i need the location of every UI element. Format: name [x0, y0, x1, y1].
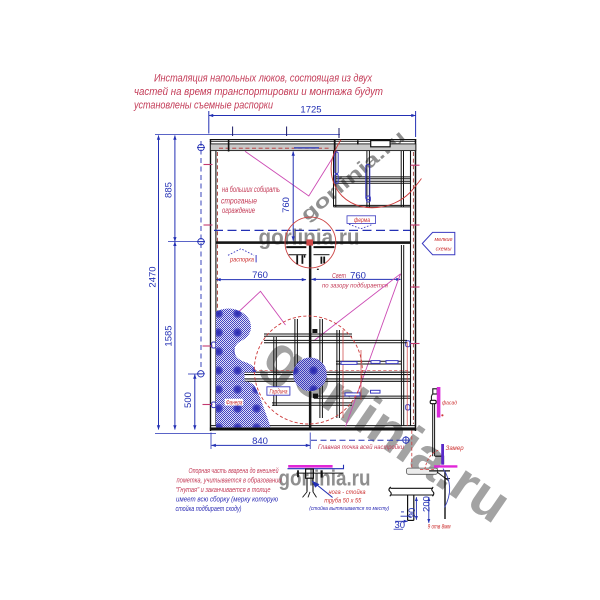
svg-text:частей на время транспортиров: частей на время транспортировки и монтаж… — [134, 86, 383, 98]
svg-text:885: 885 — [164, 182, 175, 198]
svg-text:имеет всю сборку (мерку котору: имеет всю сборку (мерку которую — [176, 495, 278, 504]
svg-text:1585: 1585 — [164, 325, 175, 346]
svg-text:мелкие: мелкие — [434, 237, 452, 243]
svg-text:"Гнутая" и заканчивается в тол: "Гнутая" и заканчивается в толще — [176, 485, 271, 494]
svg-text:500: 500 — [183, 392, 194, 408]
svg-text:стойка подбирает сходу): стойка подбирает сходу) — [176, 504, 242, 513]
svg-text:840: 840 — [252, 436, 268, 447]
svg-text:1725: 1725 — [300, 105, 321, 116]
svg-text:Опорная часть вварена до внешн: Опорная часть вварена до внешней — [189, 466, 280, 475]
svg-text:установлены съемные распорки: установлены съемные распорки — [133, 100, 273, 112]
svg-text:по зазору подбирается: по зазору подбирается — [322, 283, 389, 289]
svg-text:Замер: Замер — [446, 445, 465, 452]
svg-text:Свет: Свет — [332, 271, 346, 280]
svg-text:распорка: распорка — [229, 257, 254, 264]
svg-text:схемы: схемы — [436, 247, 452, 253]
svg-text:760: 760 — [252, 270, 268, 281]
svg-text:пометка, учитывается в образо: пометка, учитывается в образовании — [177, 476, 283, 485]
svg-text:нога - стойка: нога - стойка — [329, 488, 366, 496]
svg-text:труба 50 х 55: труба 50 х 55 — [324, 497, 361, 505]
svg-text:ферма: ферма — [354, 217, 370, 224]
svg-text:Инсталяция напольных люков, со: Инсталяция напольных люков, состоящая из… — [154, 73, 372, 85]
svg-text:2470: 2470 — [148, 266, 159, 287]
svg-text:строганые: строганые — [221, 197, 257, 206]
svg-text:ограждение: ограждение — [222, 206, 255, 215]
svg-text:760: 760 — [350, 271, 366, 282]
svg-text:9 отв 8мм: 9 отв 8мм — [428, 523, 452, 530]
svg-text:(стойка вытягивается по месту): (стойка вытягивается по месту) — [309, 505, 389, 512]
svg-text:Гардина: Гардина — [270, 390, 289, 396]
svg-text:760: 760 — [281, 197, 292, 213]
svg-text:фасад: фасад — [442, 401, 457, 407]
svg-text:на больших собирать: на больших собирать — [222, 185, 280, 194]
svg-text:90: 90 — [407, 508, 418, 519]
svg-text:Фанера: Фанера — [226, 401, 243, 407]
svg-text:200: 200 — [422, 496, 433, 512]
svg-text:Главная точка всей настройки: Главная точка всей настройки — [318, 444, 405, 451]
